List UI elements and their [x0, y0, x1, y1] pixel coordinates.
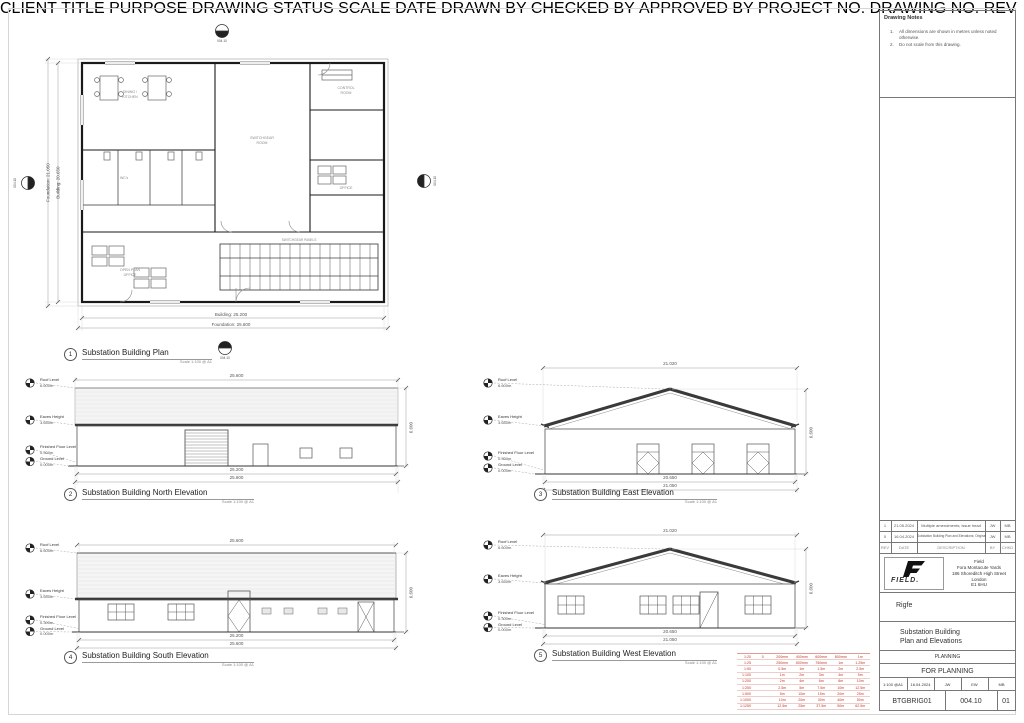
- company-logo-box: FIELD.: [884, 557, 944, 590]
- rev-date: 21.05.2024: [891, 524, 917, 529]
- level-label: Finished Floor Level: [40, 445, 76, 450]
- view-marker-ref-top: 004.10: [208, 40, 236, 44]
- room-label-wc: WC's: [120, 176, 128, 180]
- rev-cell: 1: [879, 524, 891, 529]
- company-logo-word: FIELD.: [891, 577, 919, 585]
- level-value: 6.600m: [40, 549, 53, 554]
- room-label-dining: DINING / KITCHEN: [102, 90, 158, 99]
- rev-description: Substation Building Plan and Elevations;…: [917, 535, 985, 539]
- view-scale-plan: Scale 1:100 @ A1: [82, 360, 212, 365]
- view-number-west: 5: [534, 649, 547, 662]
- scale-value: 1:100 @A1: [879, 683, 907, 688]
- level-value: 0.300m: [498, 457, 511, 462]
- level-value: 3.650m: [498, 580, 511, 585]
- level-label: Eaves Height: [40, 589, 64, 594]
- level-label: Roof Level: [40, 543, 59, 548]
- rev-header: DATE: [891, 546, 917, 551]
- rev-header: BY: [985, 546, 1000, 551]
- east-dim-top: 21.020: [543, 361, 797, 366]
- view-title-north: Substation Building North Elevation: [82, 488, 207, 497]
- drawing-no: 004.10: [945, 698, 997, 706]
- east-dim-building: 20.650: [545, 475, 795, 480]
- level-value: 0.300m: [40, 621, 53, 626]
- north-dim-building: 25.200: [77, 467, 396, 472]
- view-title-south: Substation Building South Elevation: [82, 651, 209, 660]
- level-label: Eaves Height: [40, 415, 64, 420]
- view-scale-west: Scale 1:100 @ A1: [552, 661, 717, 666]
- date-value: 16.04.2024: [907, 683, 934, 688]
- level-label: Finished Floor Level: [498, 451, 534, 456]
- east-dim-height: 6.600: [808, 412, 813, 452]
- level-label: Roof Level: [40, 378, 59, 383]
- view-marker-ref-bottom: 004.10: [211, 357, 239, 361]
- east-elevation-linework: [484, 366, 809, 493]
- west-dim-height: 6.600: [808, 568, 813, 608]
- rev-cell: 0: [879, 535, 891, 540]
- project-no: BTGBRIG01: [879, 698, 945, 706]
- drawn-value: JW: [934, 683, 961, 688]
- view-scale-south: Scale 1:100 @ A1: [82, 663, 254, 668]
- scale-bar: 1:200200mm400mm600mm800mm1m1:25250mm500m…: [737, 653, 870, 710]
- west-dim-foundation: 21.050: [543, 637, 797, 642]
- plan-dim-building: Building: 25.200: [78, 312, 384, 317]
- level-label: Roof Level: [498, 378, 517, 383]
- note-number: 1.: [890, 29, 894, 34]
- view-scale-north: Scale 1:100 @ A1: [82, 500, 254, 505]
- view-number-east: 3: [534, 488, 547, 501]
- company-address: Field Fora Montacute Yards 186 Shoreditc…: [944, 559, 1014, 588]
- level-value: 0.000m: [498, 628, 511, 633]
- level-label: Roof Level: [498, 540, 517, 545]
- south-dim-height: 6.600: [408, 572, 413, 612]
- client-name: Rigfe: [896, 602, 912, 610]
- view-title-west: Substation Building West Elevation: [552, 649, 676, 658]
- level-label: Ground Level: [498, 463, 522, 468]
- rev-header: REV: [879, 546, 891, 551]
- south-dim-foundation: 25.600: [77, 641, 396, 646]
- view-title-plan: Substation Building Plan: [82, 348, 169, 357]
- note-text: All dimensions are shown in metres unles…: [899, 29, 1007, 40]
- level-value: 3.650m: [498, 421, 511, 426]
- room-label-office: OFFICE: [322, 186, 370, 190]
- purpose-value: PLANNING: [879, 655, 1016, 661]
- west-dim-top: 21.020: [543, 528, 797, 533]
- drawing-title: Substation Building Plan and Elevations: [900, 628, 962, 646]
- room-label-switchroom: SWITCHGEAR ROOM: [230, 136, 294, 145]
- level-value: 0.000m: [40, 463, 53, 468]
- level-value: 0.000m: [40, 632, 53, 637]
- level-label: Finished Floor Level: [498, 611, 534, 616]
- south-dim-top: 25.600: [77, 538, 396, 543]
- approved-value: MB: [988, 683, 1015, 688]
- north-dim-height: 6.600: [408, 407, 413, 447]
- room-label-control: CONTROL ROOM: [318, 86, 374, 95]
- scalebar-row: 1:125012.5m25m37.5m50m62.5m: [737, 704, 870, 710]
- rev-header: CHKD: [1000, 546, 1015, 551]
- level-value: 6.600m: [498, 384, 511, 389]
- level-label: Eaves Height: [498, 574, 522, 579]
- rev-by: JW: [985, 535, 1000, 540]
- view-scale-east: Scale 1:100 @ A1: [552, 500, 717, 505]
- status-value: FOR PLANNING: [879, 668, 1016, 676]
- level-label: Eaves Height: [498, 415, 522, 420]
- level-value: 3.650m: [40, 421, 53, 426]
- drawing-sheet: DINING / KITCHEN WC's SWITCHGEAR ROOM CO…: [0, 0, 1024, 723]
- note-text: Do not scale from this drawing.: [899, 42, 1007, 48]
- view-marker-ref-left: 004.10: [14, 168, 18, 196]
- plan-dim-foundation: Foundation: 25.600: [74, 322, 388, 327]
- note-number: 2.: [890, 42, 894, 47]
- rev-description: Multiple amendments; issue head: [917, 524, 985, 529]
- rev-chkd: MB: [1000, 524, 1015, 529]
- level-value: 0.300m: [40, 451, 53, 456]
- rev-header: DESCRIPTION: [917, 546, 985, 551]
- level-label: Finished Floor Level: [40, 615, 76, 620]
- south-dim-building: 25.200: [79, 633, 394, 638]
- rev-by: JW: [985, 524, 1000, 529]
- level-value: 6.600m: [498, 546, 511, 551]
- level-value: 3.650m: [40, 595, 53, 600]
- view-marker-ref-right: 004.10: [434, 166, 438, 194]
- plan-dim-left-building: Building: 20.650: [55, 148, 60, 218]
- plan-dim-left-foundation: Foundation: 21.050: [45, 148, 50, 218]
- level-label: Ground Level: [40, 457, 64, 462]
- north-dim-top: 25.600: [75, 373, 398, 378]
- rev-chkd: MB: [1000, 535, 1015, 540]
- view-number-south: 4: [64, 651, 77, 664]
- west-dim-building: 20.650: [545, 629, 795, 634]
- level-value: 0.000m: [498, 469, 511, 474]
- level-value: 6.600m: [40, 384, 53, 389]
- rev-date: 16.04.2024: [891, 535, 917, 540]
- view-number-plan: 1: [64, 348, 77, 361]
- notes-title: Drawing Notes: [884, 15, 923, 21]
- room-label-panels: SWITCHGEAR PANELS: [254, 239, 344, 243]
- level-value: 0.300m: [498, 617, 511, 622]
- view-number-north: 2: [64, 488, 77, 501]
- room-label-open-office: OPEN PLAN OFFICE: [100, 268, 160, 277]
- north-dim-foundation: 25.600: [75, 475, 398, 480]
- rev-value: 01: [997, 698, 1015, 706]
- view-title-east: Substation Building East Elevation: [552, 488, 674, 497]
- checked-value: EW: [961, 683, 988, 688]
